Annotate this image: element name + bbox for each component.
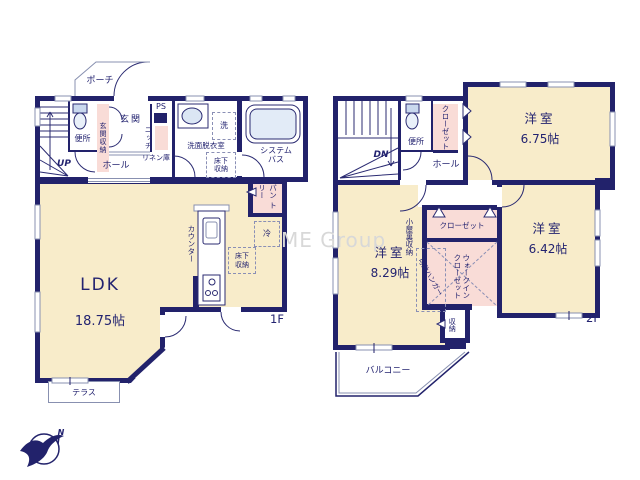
f1-wall-pantry-bottom bbox=[250, 213, 287, 217]
f1-linen-label: リネン庫 bbox=[138, 154, 174, 162]
f1-underfloor-storage-wash: 床下 収納 bbox=[206, 152, 236, 178]
f2-room-a-name: 洋室 bbox=[516, 112, 564, 127]
f2-hall-label: ホール bbox=[426, 160, 466, 171]
north-compass-icon bbox=[20, 434, 64, 467]
f2-closet-mid-label: クローゼット bbox=[440, 220, 485, 231]
f1-pantry: パン トリー bbox=[253, 184, 282, 213]
f2-stairs-cell bbox=[338, 101, 398, 180]
f1-wall-kitchen-left bbox=[193, 276, 199, 307]
f1-entrance-storage-label: 玄関収納 bbox=[98, 122, 108, 154]
f1-toilet-label: 便所 bbox=[68, 134, 97, 143]
f1-ldk-size: 18.75帖 bbox=[58, 314, 142, 329]
f2-floor-label: 2F bbox=[580, 312, 606, 326]
f1-up-label: UP bbox=[54, 159, 74, 170]
watermark: ME Group bbox=[281, 228, 386, 252]
floorplan-canvas: 玄関収納 パン トリー テラス クローゼット クローゼット bbox=[0, 0, 640, 480]
f2-toilet-label: 便所 bbox=[401, 137, 431, 146]
f2-wic-label: ウォークイン クローゼット bbox=[452, 246, 470, 306]
f2-wall-storage-right bbox=[465, 308, 470, 341]
f2-storage-label: 収納 bbox=[448, 314, 456, 336]
f1-terrace-label: テラス bbox=[72, 387, 96, 398]
f2-closet-upper-label: クローゼット bbox=[440, 105, 451, 150]
f2-room-b-size: 8.29帖 bbox=[362, 266, 418, 280]
f1-fridge-space: 冷 bbox=[254, 221, 280, 247]
f1-hall-label: ホール bbox=[96, 161, 136, 172]
f1-wall-toilet-bottom bbox=[68, 150, 97, 152]
f1-counter-label: カウンター bbox=[186, 220, 195, 268]
f1-porch-label: ポーチ bbox=[82, 76, 118, 87]
f2-balcony-label: バルコニー bbox=[356, 366, 420, 377]
f2-closet-mid: クローゼット bbox=[427, 210, 497, 240]
f1-ldk-name: LDK bbox=[58, 275, 142, 295]
f2-room-a-size: 6.75帖 bbox=[514, 132, 566, 146]
f2-wall-closet-bottom bbox=[433, 150, 458, 153]
f2-room-c-size: 6.42帖 bbox=[522, 242, 574, 256]
f1-floor-label: 1F bbox=[264, 313, 290, 327]
f2-closet-upper: クローゼット bbox=[433, 104, 458, 150]
f1-system-bath-label: システム バス bbox=[252, 146, 300, 165]
f1-washer-space: 洗 bbox=[212, 112, 236, 140]
f2-wall-wic-right bbox=[497, 180, 502, 310]
f1-washroom-label: 洗面脱衣室 bbox=[174, 142, 238, 151]
f1-wall-stairs-toilet bbox=[68, 101, 70, 152]
f2-dn-label: DN bbox=[370, 150, 392, 161]
f1-pantry-label: パン トリー bbox=[257, 184, 279, 213]
f1-underfloor-storage-ldk: 床下 収納 bbox=[228, 247, 256, 274]
f1-niche-box bbox=[155, 126, 168, 150]
f2-solid-pillar bbox=[450, 341, 466, 349]
f1-terrace: テラス bbox=[48, 381, 120, 403]
f1-ps-shaft bbox=[154, 113, 167, 123]
f1-niche-label: ニッチ bbox=[144, 124, 152, 152]
compass-north-label: N bbox=[55, 428, 67, 437]
f2-wall-join-right bbox=[595, 178, 615, 190]
f1-system-bath-room bbox=[242, 101, 303, 177]
f2-passage bbox=[418, 185, 497, 207]
f2-wall-toilet-bottom bbox=[401, 150, 431, 152]
f1-ps-label: PS bbox=[152, 102, 170, 111]
f2-room-c-name: 洋室 bbox=[524, 222, 572, 237]
f1-ldk-label: LDK 18.75帖 bbox=[58, 256, 142, 348]
